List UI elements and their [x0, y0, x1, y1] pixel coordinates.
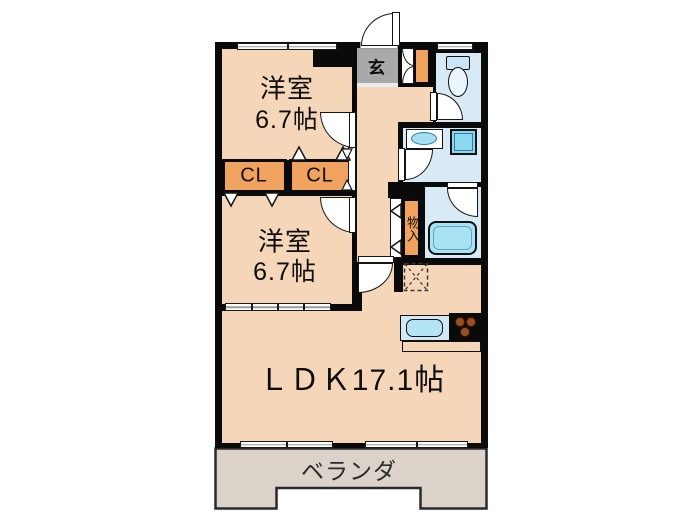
toilet-door-leaf [430, 92, 437, 121]
stove-icon [449, 313, 481, 343]
wall-closet-strip [348, 147, 356, 191]
counter-front [402, 341, 481, 352]
burner [460, 327, 470, 337]
sliding-partition [225, 303, 331, 311]
closet2-label: CL [306, 165, 334, 188]
window-icon [240, 441, 333, 448]
veranda-label: ベランダ [301, 452, 397, 486]
kitchen-sink-icon [406, 319, 443, 337]
storage-doors [390, 198, 402, 258]
bedroom-lower-door-leaf [349, 197, 356, 233]
toilet-bowl [448, 67, 468, 97]
window-icon [237, 43, 337, 50]
kitchen-strip [403, 265, 481, 311]
entrance-door-swing-icon [361, 13, 395, 46]
burner [466, 317, 476, 327]
window-icon [365, 441, 468, 448]
ldk-label: ＬＤＫ17.1帖 [259, 355, 445, 399]
washroom-door-leaf [398, 148, 405, 181]
entrance-label: 玄 [368, 54, 386, 79]
floor-plan: 洋室 6.7帖 洋室 6.7帖 ＬＤＫ17.1帖 ベランダ 玄 CL CL 物入 [0, 0, 700, 525]
bedroom-upper-size: 6.7帖 [255, 100, 319, 136]
washing-machine-icon [450, 129, 477, 155]
wall-pillar [313, 49, 352, 67]
bedroom-lower-size: 6.7帖 [253, 252, 317, 288]
entrance-door-leaf [392, 12, 400, 46]
storage-label: 物入 [404, 202, 420, 256]
washbasin-icon [406, 129, 443, 149]
wall-above-storage [388, 182, 422, 198]
burner [455, 317, 465, 327]
ldk-door-leaf [358, 256, 394, 263]
hallway-top [398, 87, 433, 122]
bedroom-upper-door-leaf [349, 112, 356, 148]
window-icon [437, 43, 473, 50]
bathtub-icon [428, 221, 477, 255]
shoe-cabinet [414, 48, 430, 84]
closet1-label: CL [240, 165, 268, 188]
